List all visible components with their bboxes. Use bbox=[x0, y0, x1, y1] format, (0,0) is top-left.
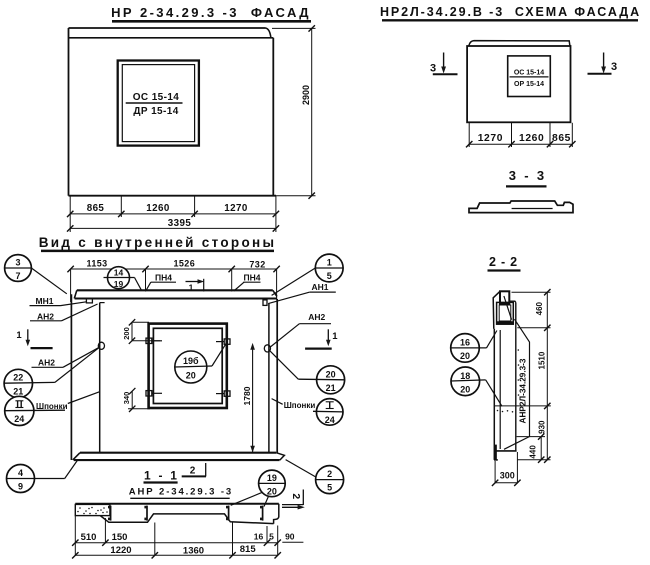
svg-text:ПН4: ПН4 bbox=[155, 273, 172, 283]
svg-text:1270: 1270 bbox=[224, 203, 248, 214]
svg-text:ОС 15-14: ОС 15-14 bbox=[133, 92, 180, 103]
svg-text:1260: 1260 bbox=[146, 203, 170, 214]
svg-text:Шпонки: Шпонки bbox=[284, 401, 316, 410]
svg-text:2: 2 bbox=[327, 469, 332, 479]
svg-text:2: 2 bbox=[190, 466, 196, 477]
svg-text:1220: 1220 bbox=[110, 545, 131, 556]
svg-text:1: 1 bbox=[327, 258, 332, 268]
svg-text:460: 460 bbox=[535, 301, 544, 315]
svg-text:3395: 3395 bbox=[168, 218, 192, 229]
svg-text:2-2: 2-2 bbox=[489, 255, 522, 269]
svg-text:1360: 1360 bbox=[183, 545, 204, 556]
svg-text:АН2: АН2 bbox=[38, 358, 55, 368]
svg-text:24: 24 bbox=[14, 414, 24, 424]
svg-text:22: 22 bbox=[13, 373, 23, 383]
svg-text:ПН4: ПН4 bbox=[244, 273, 261, 283]
svg-text:21: 21 bbox=[326, 383, 336, 393]
svg-text:732: 732 bbox=[249, 260, 265, 270]
svg-text:1260: 1260 bbox=[519, 133, 544, 144]
svg-text:1526: 1526 bbox=[173, 259, 195, 269]
svg-text:16: 16 bbox=[254, 532, 264, 542]
svg-text:815: 815 bbox=[240, 544, 257, 555]
svg-text:14: 14 bbox=[114, 268, 124, 278]
svg-text:90: 90 bbox=[285, 532, 295, 542]
svg-text:150: 150 bbox=[112, 532, 128, 543]
svg-text:АНР 2-34.29.3 -3: АНР 2-34.29.3 -3 bbox=[129, 487, 233, 498]
svg-text:МН1: МН1 bbox=[36, 296, 54, 306]
svg-text:3: 3 bbox=[430, 63, 436, 75]
svg-text:20: 20 bbox=[186, 371, 196, 381]
svg-text:1270: 1270 bbox=[478, 133, 503, 144]
svg-text:3: 3 bbox=[15, 258, 20, 268]
svg-text:340: 340 bbox=[122, 392, 131, 405]
svg-text:1510: 1510 bbox=[537, 351, 546, 369]
svg-text:300: 300 bbox=[500, 470, 515, 480]
svg-text:16: 16 bbox=[460, 337, 470, 347]
svg-text:200: 200 bbox=[122, 327, 131, 340]
svg-text:930: 930 bbox=[537, 420, 546, 434]
svg-text:АН2: АН2 bbox=[308, 312, 325, 322]
svg-text:440: 440 bbox=[529, 445, 538, 459]
svg-text:20: 20 bbox=[326, 369, 336, 379]
svg-text:ОР 15-14: ОР 15-14 bbox=[514, 81, 544, 88]
svg-text:865: 865 bbox=[87, 203, 105, 214]
svg-text:АН1: АН1 bbox=[311, 282, 328, 292]
svg-text:20: 20 bbox=[460, 384, 470, 394]
svg-text:4: 4 bbox=[18, 468, 23, 478]
svg-text:20: 20 bbox=[267, 486, 277, 496]
svg-text:20: 20 bbox=[460, 351, 470, 361]
svg-text:19: 19 bbox=[114, 279, 124, 289]
svg-text:1: 1 bbox=[16, 330, 22, 341]
svg-text:2: 2 bbox=[290, 493, 302, 499]
svg-text:24: 24 bbox=[325, 415, 335, 425]
svg-text:21: 21 bbox=[13, 386, 23, 396]
svg-text:НР 2-34.29.3 -3 ФАСАД: НР 2-34.29.3 -3 ФАСАД bbox=[111, 5, 311, 20]
svg-text:510: 510 bbox=[81, 532, 97, 543]
svg-text:АН2: АН2 bbox=[37, 311, 54, 321]
svg-text:5: 5 bbox=[327, 483, 332, 493]
svg-text:3-3: 3-3 bbox=[509, 168, 553, 183]
svg-text:5: 5 bbox=[269, 532, 274, 542]
svg-text:1780: 1780 bbox=[242, 386, 252, 405]
svg-text:ДР 15-14: ДР 15-14 bbox=[133, 106, 178, 117]
svg-text:1: 1 bbox=[332, 331, 338, 342]
svg-text:Вид с внутренней стороны: Вид с внутренней стороны bbox=[39, 235, 277, 250]
svg-text:5: 5 bbox=[327, 271, 332, 281]
svg-text:7: 7 bbox=[15, 271, 20, 281]
svg-text:19б: 19б bbox=[183, 356, 199, 366]
svg-text:АНР2Л-34.29.3-3: АНР2Л-34.29.3-3 bbox=[519, 358, 528, 423]
svg-text:9: 9 bbox=[18, 482, 23, 492]
svg-text:2900: 2900 bbox=[301, 85, 311, 105]
svg-text:19: 19 bbox=[267, 473, 277, 483]
svg-text:18: 18 bbox=[460, 371, 470, 381]
svg-text:НР2Л-34.29.В -3 СХЕМА ФАСАДА: НР2Л-34.29.В -3 СХЕМА ФАСАДА bbox=[380, 5, 641, 19]
svg-text:1153: 1153 bbox=[86, 258, 107, 268]
svg-text:ОС 15-14: ОС 15-14 bbox=[514, 70, 544, 77]
svg-text:1-1: 1-1 bbox=[144, 469, 185, 483]
svg-text:865: 865 bbox=[552, 133, 571, 144]
svg-text:3: 3 bbox=[611, 61, 617, 73]
